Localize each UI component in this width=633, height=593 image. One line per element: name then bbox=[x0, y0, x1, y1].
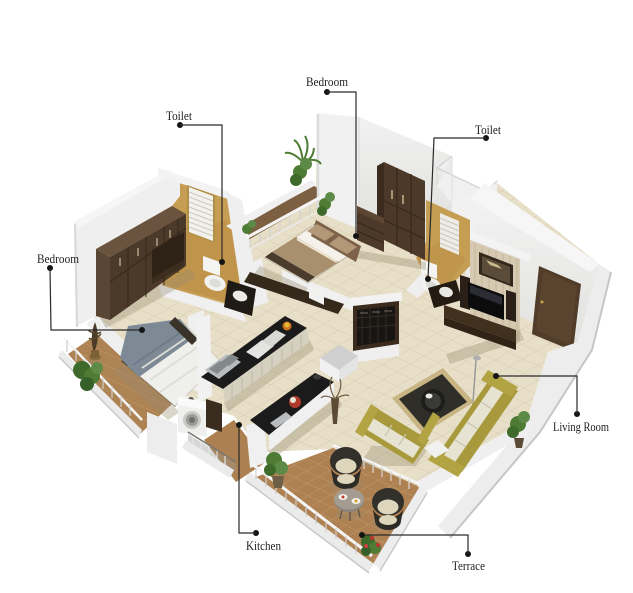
svg-text:Kitchen: Kitchen bbox=[246, 538, 281, 553]
svg-text:Terrace: Terrace bbox=[452, 558, 485, 573]
svg-text:Living Room: Living Room bbox=[553, 419, 609, 434]
svg-text:Toilet: Toilet bbox=[166, 108, 192, 123]
svg-text:Toilet: Toilet bbox=[475, 122, 501, 137]
svg-text:Bedroom: Bedroom bbox=[37, 251, 79, 266]
svg-text:Bedroom: Bedroom bbox=[306, 74, 348, 89]
